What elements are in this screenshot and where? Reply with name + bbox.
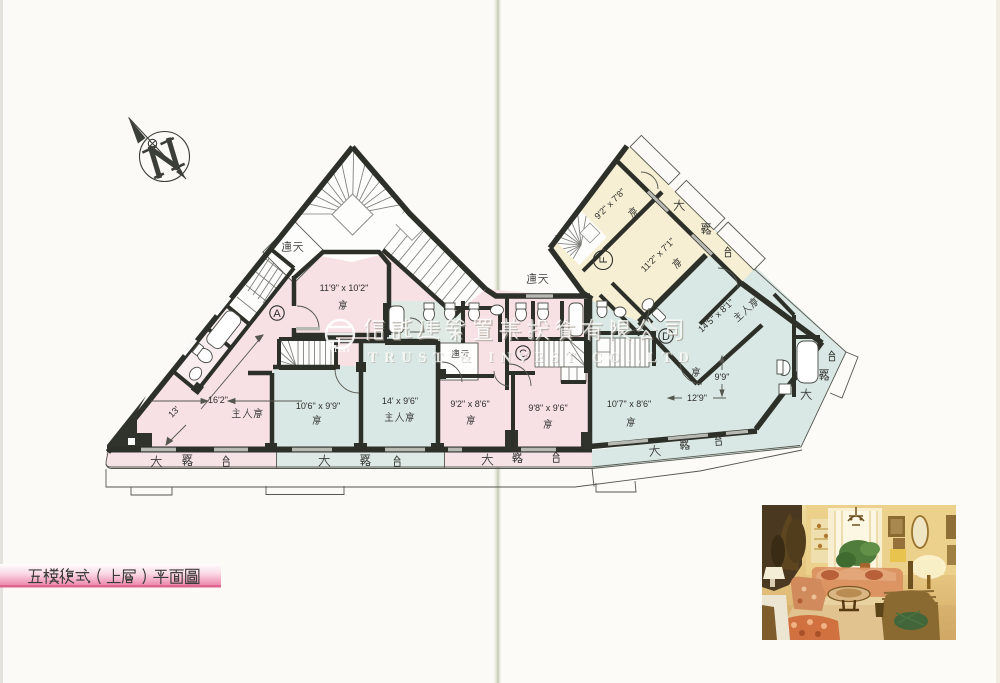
svg-text:F: F xyxy=(598,256,610,263)
svg-text:9'2" x 8'6": 9'2" x 8'6" xyxy=(450,399,489,409)
svg-text:14' x 9'6": 14' x 9'6" xyxy=(382,396,418,406)
svg-text:16'2": 16'2" xyxy=(208,395,228,405)
svg-text:10'7" x 8'6": 10'7" x 8'6" xyxy=(607,399,651,409)
svg-text:12'9": 12'9" xyxy=(687,393,707,403)
svg-text:9'8" x 9'6": 9'8" x 9'6" xyxy=(528,403,567,413)
svg-text:9'9": 9'9" xyxy=(715,372,730,382)
svg-text:11'9" x 10'2": 11'9" x 10'2" xyxy=(320,283,369,293)
svg-text:AT&I: AT&I xyxy=(326,344,349,355)
svg-text:A: A xyxy=(273,308,281,320)
svg-text:TRUST & INVEST CO.,LTD: TRUST & INVEST CO.,LTD xyxy=(368,350,695,366)
svg-text:10'6" x 9'9": 10'6" x 9'9" xyxy=(296,401,340,411)
